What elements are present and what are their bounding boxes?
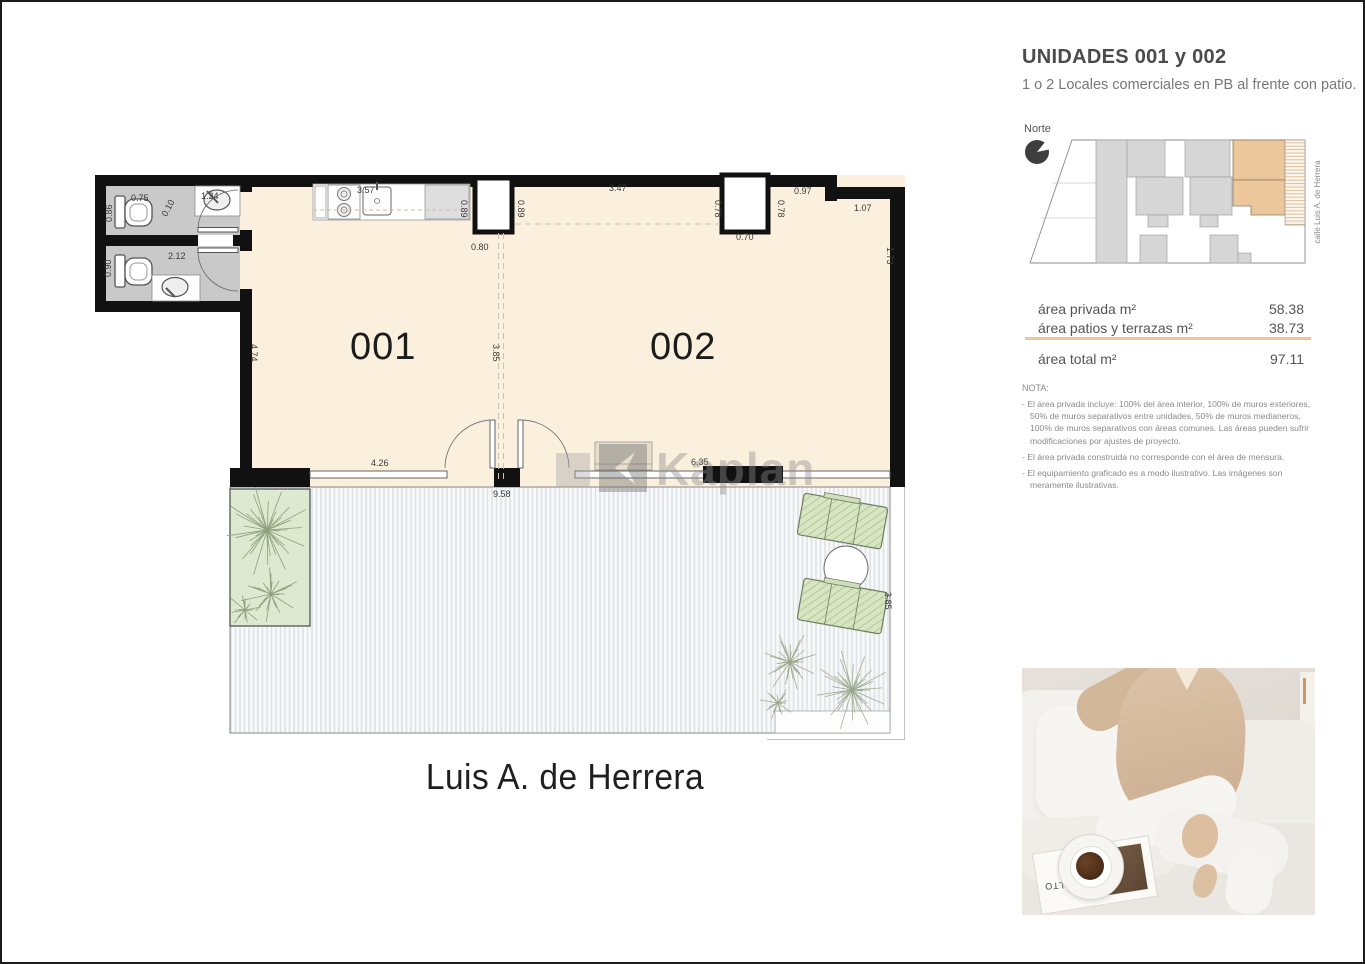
svg-text:3.85: 3.85 (883, 592, 893, 610)
sink-2 (152, 275, 200, 301)
highlighted-unit (1233, 140, 1285, 215)
svg-text:3.47: 3.47 (609, 183, 627, 193)
svg-text:0.89: 0.89 (516, 200, 526, 218)
planter (230, 489, 310, 626)
svg-text:4.26: 4.26 (371, 458, 389, 468)
column-2 (722, 175, 768, 232)
photo-coffee-saucer (1058, 834, 1124, 900)
svg-text:1.24: 1.24 (201, 191, 219, 201)
patio-curb (775, 711, 890, 733)
svg-text:1.73: 1.73 (885, 247, 895, 265)
svg-text:0.80: 0.80 (471, 242, 489, 252)
area-value: 38.73 (1269, 320, 1304, 336)
lifestyle-photo: AALTO (1022, 668, 1315, 915)
area-total-value: 97.11 (1270, 351, 1304, 367)
area-total-label: área total m² (1038, 351, 1117, 367)
svg-text:4.74: 4.74 (249, 344, 259, 362)
street-title: Luis A. de Herrera (319, 756, 812, 798)
window-001 (310, 471, 447, 478)
nota-item: - El equipamiento graficado es a modo il… (1022, 467, 1320, 491)
nota-item: - El área privada construida no correspo… (1022, 451, 1320, 463)
toilet-2 (115, 255, 152, 287)
street-label: calle Luis A. de Herrera (1313, 160, 1322, 244)
svg-text:0.89: 0.89 (459, 200, 469, 218)
area-label: área patios y terrazas m² (1038, 320, 1193, 336)
svg-text:0.97: 0.97 (794, 186, 812, 196)
svg-text:0.78: 0.78 (713, 200, 723, 218)
svg-text:0.75: 0.75 (131, 193, 149, 203)
panel-title: UNIDADES 001 y 002 (1022, 46, 1226, 69)
svg-text:1.07: 1.07 (854, 203, 872, 213)
photo-coffee-cup (1070, 846, 1112, 888)
column-1 (475, 178, 512, 232)
rooms-floor (240, 175, 905, 487)
panel-subtitle: 1 o 2 Locales comerciales en PB al frent… (1022, 77, 1357, 93)
svg-text:0.90: 0.90 (103, 259, 113, 277)
svg-text:2.12: 2.12 (168, 251, 186, 261)
bench (595, 442, 652, 470)
unit-002-label: 002 (650, 326, 716, 368)
svg-text:0.86: 0.86 (104, 204, 114, 222)
svg-text:0.70: 0.70 (736, 232, 754, 242)
site-plan: Norte calle Luis A. de Herrera (1022, 118, 1342, 278)
area-value: 58.38 (1269, 301, 1304, 317)
plan-sheet: 001 002 0.75 0.86 0.10 1.24 2.12 0.90 3.… (0, 0, 1365, 964)
nota-item: - El área privada incluye: 100% del área… (1022, 398, 1320, 447)
north-compass-icon (1025, 140, 1049, 164)
svg-text:9.58: 9.58 (493, 489, 511, 499)
nota-title: NOTA: (1022, 383, 1320, 393)
north-label: Norte (1024, 123, 1051, 135)
kitchen-counter (313, 182, 470, 220)
area-label: área privada m² (1038, 301, 1136, 317)
nota-block: NOTA: - El área privada incluye: 100% de… (1022, 383, 1320, 495)
unit-patio-hatch (1285, 140, 1305, 225)
area-row-total: área total m² 97.11 (1038, 351, 1304, 367)
area-table-divider (1025, 337, 1311, 340)
svg-text:0.78: 0.78 (776, 200, 786, 218)
svg-text:6.35: 6.35 (691, 457, 709, 467)
floor-plan: 001 002 0.75 0.86 0.10 1.24 2.12 0.90 3.… (95, 170, 905, 740)
photo-coffee (1076, 852, 1104, 880)
area-row-private: área privada m² 58.38 (1038, 301, 1304, 317)
svg-text:3.57: 3.57 (357, 185, 375, 195)
svg-text:3.85: 3.85 (491, 344, 501, 362)
patio-floor (230, 487, 890, 733)
unit-001-label: 001 (350, 326, 416, 368)
area-row-patios: área patios y terrazas m² 38.73 (1038, 320, 1304, 336)
